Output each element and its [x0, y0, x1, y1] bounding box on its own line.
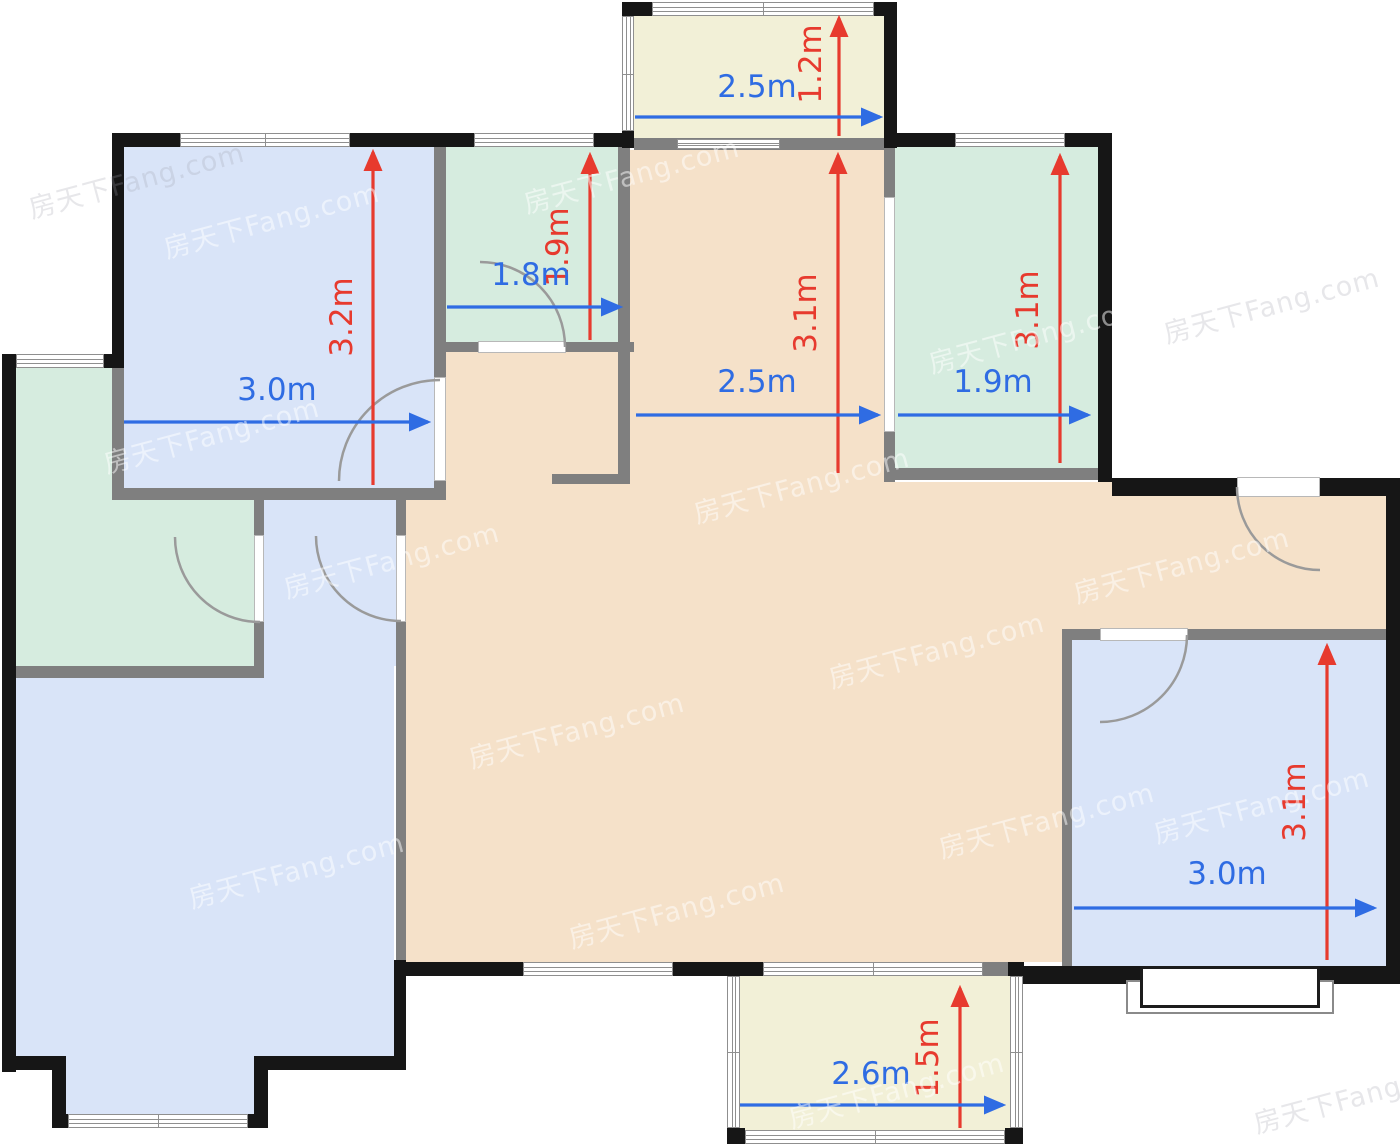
exterior-wall [1018, 966, 1140, 984]
window [745, 1130, 1005, 1144]
window [727, 976, 740, 1128]
window [622, 16, 634, 131]
window [652, 2, 874, 16]
exterior-wall [727, 1128, 745, 1144]
window-mullion [17, 359, 103, 360]
exterior-wall [268, 1056, 406, 1070]
entry-hall [1062, 482, 1386, 630]
window [474, 133, 594, 147]
interior-wall [884, 468, 1112, 480]
window-mullion [956, 138, 1064, 139]
exterior-wall [622, 2, 652, 16]
exterior-wall [350, 133, 446, 147]
exterior-wall [893, 133, 955, 147]
exterior-wall [673, 962, 763, 976]
hall-west-strip [406, 497, 446, 962]
exterior-wall [2, 354, 16, 1072]
hallway-blue [264, 500, 396, 666]
exterior-wall [884, 2, 897, 148]
exterior-wall [1112, 478, 1237, 496]
window [68, 1114, 248, 1128]
window-mullion [678, 145, 779, 146]
door-jamb [884, 197, 895, 432]
watermark: 房天下Fang.com [1249, 1046, 1400, 1141]
room-green-left-lower [16, 500, 254, 666]
room-green-top-right [895, 147, 1098, 468]
window-mullion [17, 363, 103, 364]
watermark: 房天下Fang.com [1159, 256, 1384, 351]
window-mullion [678, 143, 779, 144]
door-jamb [478, 341, 566, 353]
window-divider [728, 1052, 739, 1053]
window-divider [158, 1115, 159, 1127]
window-divider [623, 74, 633, 75]
window-mullion [524, 967, 672, 968]
exterior-wall [394, 960, 406, 1070]
window [180, 133, 350, 147]
window [523, 962, 673, 976]
watermark: 房天下Fang.com [394, 1016, 619, 1111]
window-divider [1011, 1052, 1022, 1053]
interior-wall [983, 962, 1010, 976]
exterior-wall [1005, 1128, 1023, 1144]
room-green-top-middle [446, 147, 618, 342]
door-jamb [1100, 628, 1188, 641]
exterior-wall [402, 962, 523, 976]
living-room-blue [16, 666, 394, 1056]
window-mullion [956, 142, 1064, 143]
exterior-wall [622, 131, 634, 148]
interior-wall [1062, 629, 1072, 966]
window [955, 133, 1065, 147]
window [1010, 976, 1023, 1128]
room-blue-top-left [124, 147, 434, 488]
hall-strip [618, 484, 630, 962]
living-room-notch [66, 1056, 254, 1114]
door-jamb [396, 535, 406, 622]
balcony-top [634, 14, 884, 140]
window-mullion [524, 971, 672, 972]
exterior-wall [112, 133, 124, 368]
hall-corridor [630, 150, 884, 962]
exterior-wall [1386, 478, 1400, 984]
hall-center [884, 482, 1062, 962]
window [677, 139, 780, 149]
exterior-wall [1098, 133, 1112, 482]
interior-wall [552, 474, 630, 484]
door-jamb [434, 377, 446, 481]
window-divider [875, 1131, 876, 1143]
window-mullion [475, 142, 593, 143]
exterior-wall [1008, 962, 1024, 976]
exterior-wall [254, 1056, 268, 1128]
interior-wall [618, 147, 630, 484]
exterior-wall [446, 133, 474, 147]
hall-pocket-left [446, 352, 618, 962]
door-jamb [1237, 477, 1320, 497]
door-jamb [254, 535, 264, 622]
exterior-wall [52, 1114, 68, 1128]
balcony-bottom [740, 976, 1010, 1130]
window [16, 354, 104, 368]
window-divider [873, 963, 874, 975]
bay-window [1140, 966, 1320, 1008]
window-divider [763, 3, 764, 15]
interior-wall [16, 666, 264, 678]
interior-wall [112, 368, 124, 500]
room-blue-right [1072, 640, 1386, 966]
floorplan-canvas: 3.2m1.9m1.2m3.1m3.1m3.1m1.5m3.0m1.8m2.5m… [0, 0, 1400, 1148]
window-mullion [475, 138, 593, 139]
window [763, 962, 983, 976]
window-divider [265, 134, 266, 146]
